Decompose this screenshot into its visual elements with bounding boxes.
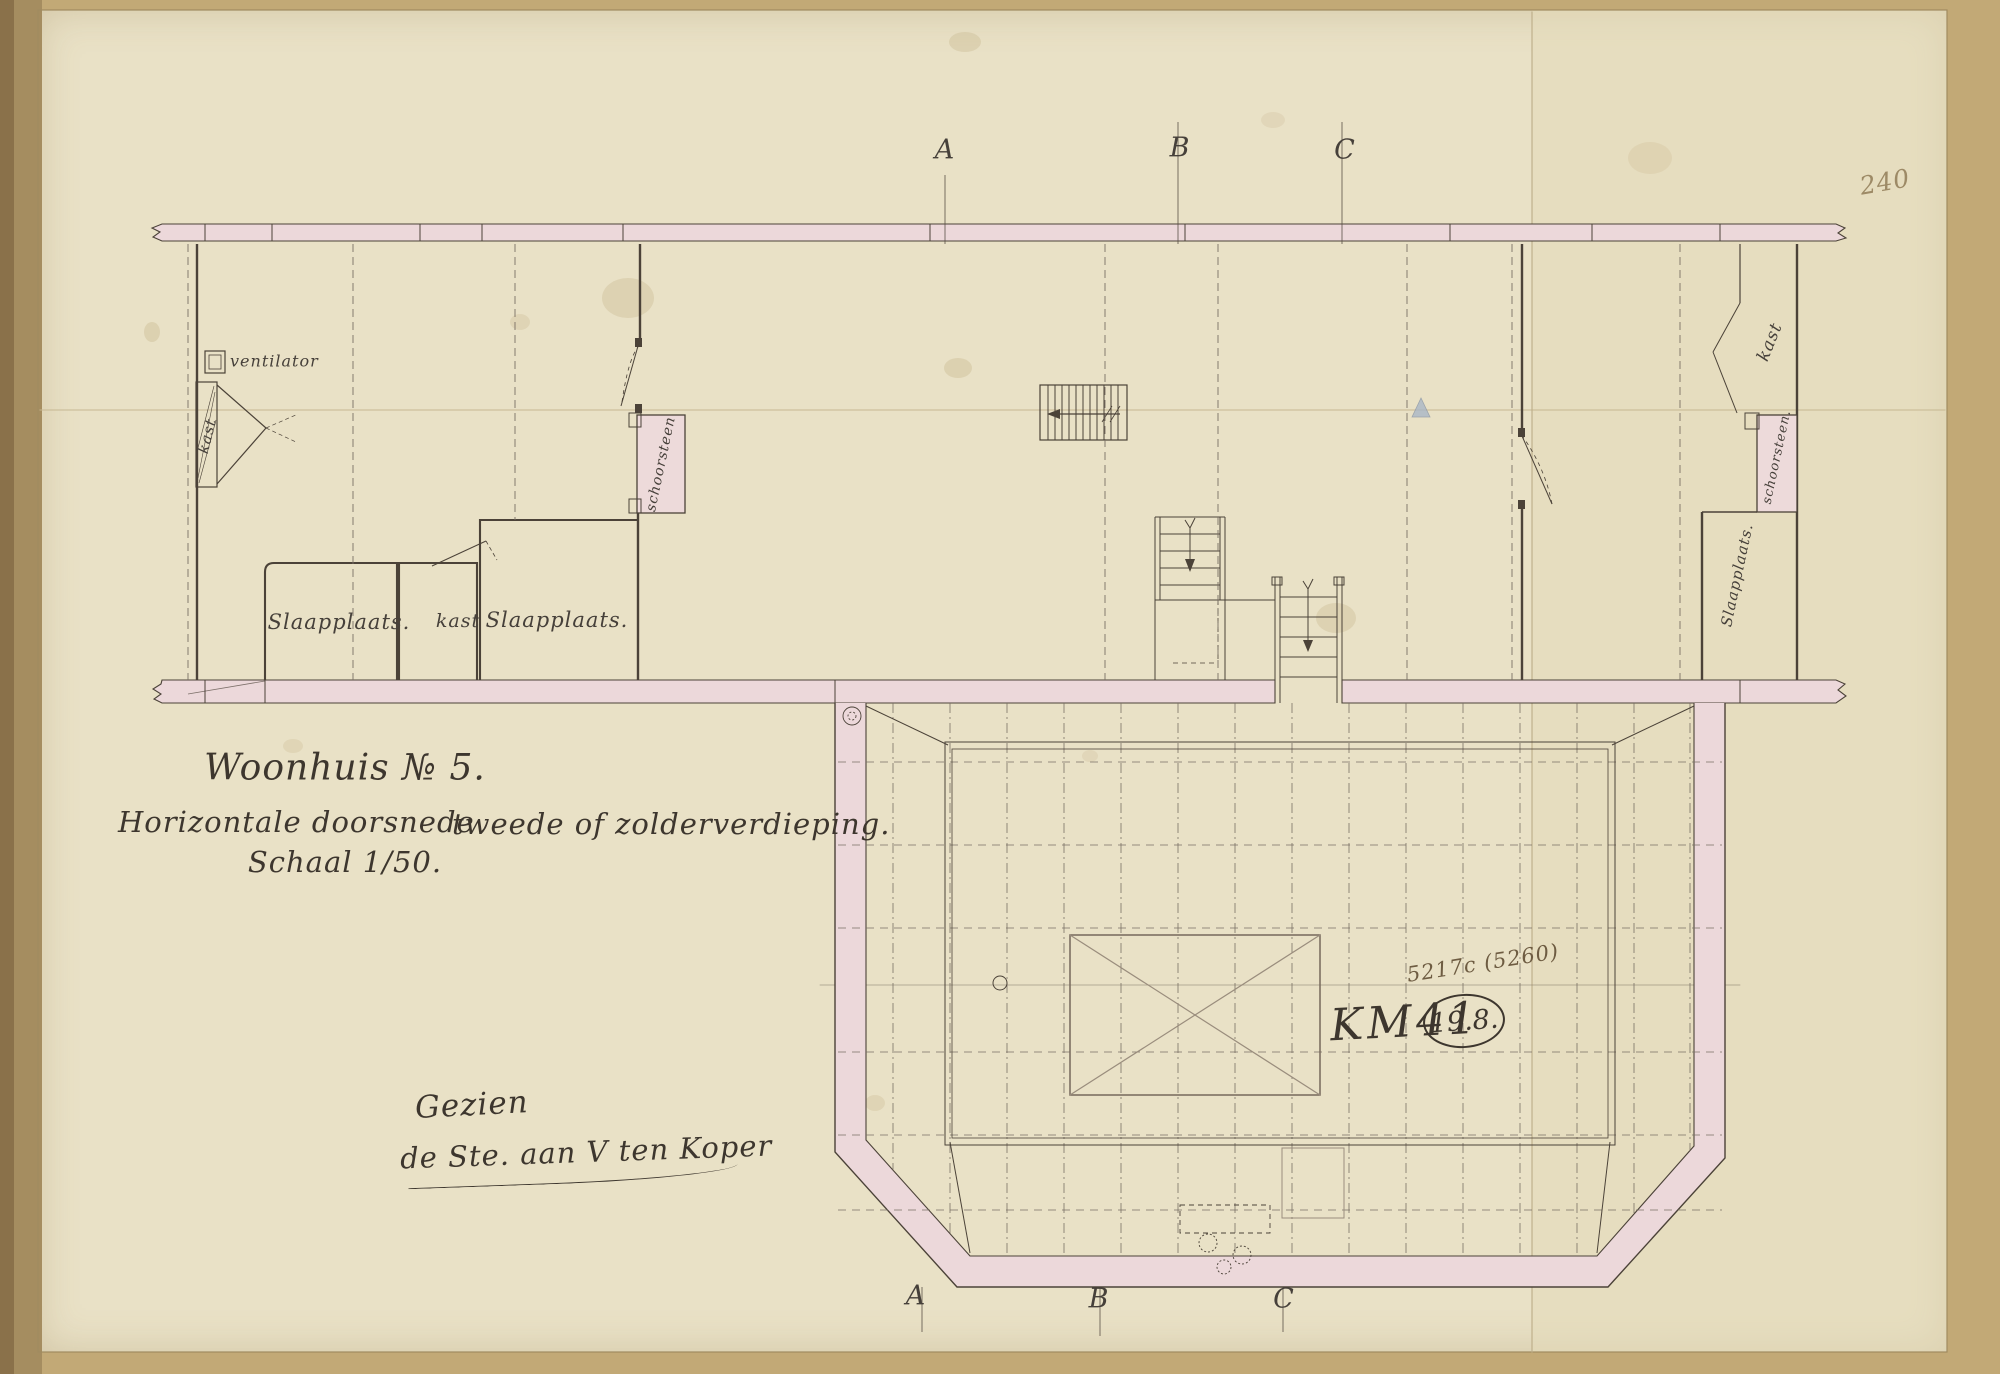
scanned-floorplan-sheet: A B C A B C ventilator kast Slaapplaats.… [0,0,2000,1374]
roof-wall-band [835,703,1725,1287]
roof-grid-vertical [893,703,1690,1287]
blue-triangle-mark [1412,398,1430,417]
bottom-wall-band-right [1342,680,1846,703]
approval-word: Gezien [414,1084,529,1126]
door-hinges [635,338,1525,509]
ventilator-symbol [205,351,225,373]
section-marker-b-bottom: B [1089,1284,1110,1315]
section-marker-lines [922,122,1342,1336]
slaapplaats-2-label: Slaapplaats. [486,608,629,632]
bed-boxes [265,520,637,680]
drawing-title: Woonhuis № 5. [204,748,486,789]
stair-ladder [1040,385,1127,440]
stair-right [1272,577,1344,703]
section-marker-a-top: A [935,135,956,166]
drawing-subtitle-left: Horizontale doorsnede [118,805,475,839]
ventilator-label: ventilator [230,352,319,371]
kast-middle-label: kast [436,610,480,632]
slaapplaats-1-label: Slaapplaats. [268,610,411,634]
section-marker-b-top: B [1170,133,1191,164]
drawing-subtitle-right: tweede of zolderverdieping. [452,807,890,841]
section-marker-a-bottom: A [906,1281,927,1312]
stair-center [1155,517,1275,680]
roof-small-circle [993,976,1007,990]
roof-inner-rect [866,706,1694,1253]
roof-opening-x [1070,935,1320,1095]
upper-plan-dashed-axes [188,244,1680,680]
roof-grid-horizontal [838,762,1722,1210]
section-marker-c-top: C [1334,135,1356,166]
roof-dashed-hatch [1180,1205,1270,1233]
roof-small-box [1282,1148,1344,1218]
bottom-wall-band-left [153,680,1275,703]
paper-stains [144,32,1672,1111]
drawing-scale-note: Schaal 1/50. [248,845,442,879]
section-marker-c-bottom: C [1273,1284,1295,1315]
floorplan-linework [0,0,2000,1374]
mat-left-dark-edge [0,0,14,1374]
doors [432,303,1740,566]
lower-roof-plan [835,703,1725,1287]
